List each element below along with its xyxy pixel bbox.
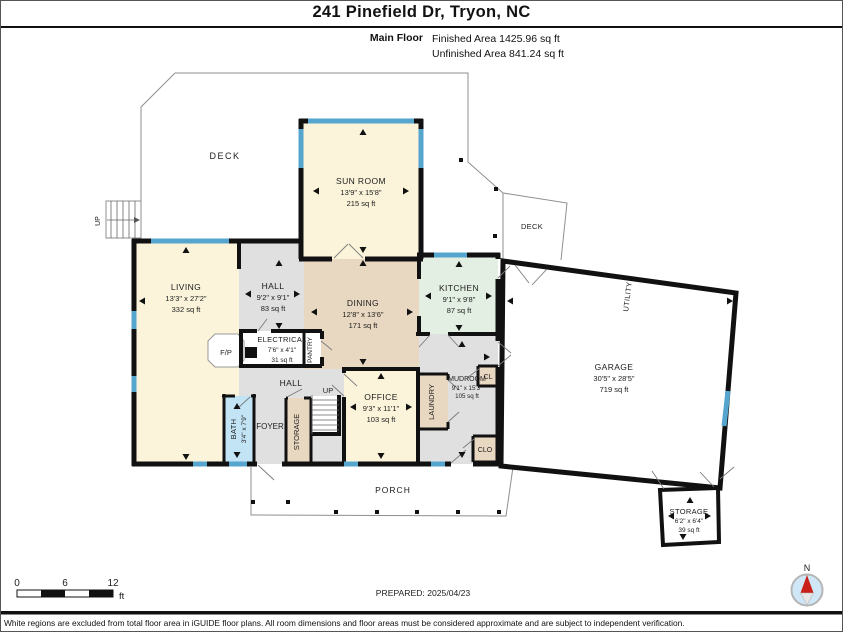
floorplan-canvas: DECK DECK SUN ROOM 13'9" x 15'8" 215 sq …: [1, 1, 843, 632]
label-electrical: ELECTRICAL: [257, 335, 306, 344]
main-stairs-fill: [312, 396, 339, 435]
label-closet-clo: CLO: [478, 447, 493, 454]
label-pantry: PANTRY: [307, 336, 314, 362]
label-dining-dims: 12'8" x 13'6": [342, 310, 383, 319]
label-garage: GARAGE: [595, 362, 634, 372]
label-foyer: FOYER: [256, 422, 284, 431]
label-garage-area: 719 sq ft: [600, 385, 630, 394]
label-stairs-deck-up: UP: [95, 216, 102, 226]
label-closet-cl: CL: [484, 374, 493, 381]
label-fireplace: F/P: [220, 348, 232, 357]
label-living-area: 332 sq ft: [172, 305, 202, 314]
label-living: LIVING: [171, 282, 201, 292]
label-mudroom-area: 105 sq ft: [455, 393, 479, 400]
scale-tick-12: 12: [107, 578, 119, 589]
label-porch: PORCH: [375, 485, 411, 495]
disclaimer-text: White regions are excluded from total fl…: [4, 618, 839, 628]
scale-tick-6: 6: [62, 578, 68, 589]
scale-bar-segment: [41, 591, 65, 597]
label-kitchen-area: 87 sq ft: [447, 306, 473, 315]
label-sunroom-dims: 13'9" x 15'8": [340, 188, 381, 197]
label-deck-e: DECK: [521, 222, 543, 231]
scale-tick-0: 0: [14, 578, 20, 589]
label-bath: BATH: [229, 419, 238, 440]
label-stairs-main-up: UP: [323, 386, 333, 395]
label-storage-se: STORAGE: [670, 507, 709, 516]
scale-bar-segment: [89, 591, 113, 597]
label-living-dims: 13'3" x 27'2": [165, 294, 206, 303]
label-storage-se-dims: 6'2" x 6'4": [675, 518, 704, 525]
label-electrical-dims: 7'6" x 4'1": [268, 347, 297, 354]
scale-bar: 0 6 12 ft: [14, 578, 124, 602]
label-mudroom: MUDROOM: [448, 376, 486, 383]
label-storage-se-area: 39 sq ft: [678, 527, 700, 534]
label-hall-upper-area: 83 sq ft: [261, 304, 287, 313]
label-hall-upper-dims: 9'2" x 9'1": [257, 293, 290, 302]
label-sunroom-area: 215 sq ft: [347, 199, 377, 208]
label-electrical-area: 31 sq ft: [271, 357, 293, 364]
room-storage-se-shape: [660, 488, 719, 545]
label-dining-area: 171 sq ft: [349, 321, 379, 330]
floorplan-page: 241 Pinefield Dr, Tryon, NC Main Floor F…: [0, 0, 843, 632]
label-kitchen-dims: 9'1" x 9'8": [443, 295, 476, 304]
label-deck-nw: DECK: [209, 151, 240, 161]
label-sunroom: SUN ROOM: [336, 176, 386, 186]
scale-unit: ft: [119, 591, 125, 602]
label-office-area: 103 sq ft: [367, 415, 397, 424]
deck-stairs-treads: [107, 201, 135, 238]
compass-north-label: N: [804, 563, 811, 573]
label-laundry: LAUNDRY: [427, 384, 436, 420]
deck-stairs-arrow: [134, 217, 140, 223]
label-garage-dims: 30'5" x 28'5": [593, 374, 634, 383]
prepared-date: PREPARED: 2025/04/23: [376, 588, 471, 598]
footer-divider: [1, 611, 843, 615]
label-hall-upper: HALL: [262, 281, 285, 291]
label-bath-dims: 3'4" x 7'9": [241, 414, 248, 443]
compass-icon: N: [792, 563, 823, 606]
label-dining: DINING: [347, 298, 379, 308]
label-office-dims: 9'3" x 11'1": [363, 404, 400, 413]
label-kitchen: KITCHEN: [439, 283, 479, 293]
electrical-panel-box: [245, 347, 257, 358]
label-office: OFFICE: [364, 392, 398, 402]
label-storage-mid: STORAGE: [292, 414, 301, 451]
label-mudroom-dims: 9'1" x 15'3": [452, 385, 483, 392]
label-hall-lower: HALL: [280, 378, 303, 388]
